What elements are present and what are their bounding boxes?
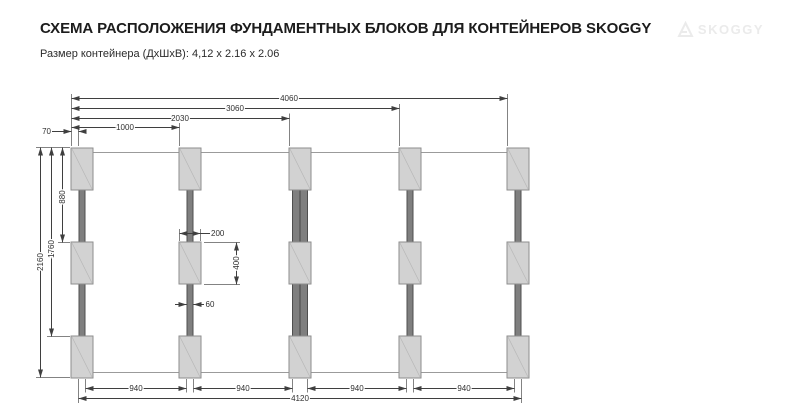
dimension-top-total: 4060	[72, 94, 508, 103]
dim-label-4120: 4120	[291, 394, 309, 403]
dimension-gap-1: 940	[86, 384, 187, 393]
foundation-blocks	[71, 148, 529, 378]
dim-label-2160: 2160	[36, 253, 45, 271]
dimension-block-height: 400	[204, 243, 241, 285]
dimension-top-2030: 2030	[72, 114, 290, 123]
page: СХЕМА РАСПОЛОЖЕНИЯ ФУНДАМЕНТНЫХ БЛОКОВ Д…	[0, 0, 800, 420]
dimension-height-880: 880	[58, 148, 67, 243]
dim-label-3060: 3060	[226, 104, 244, 113]
foundation-layout-diagram: 4060 3060 2030 1000 70 2160	[0, 0, 800, 420]
dim-label-880: 880	[58, 190, 67, 204]
dim-label-2030: 2030	[171, 114, 189, 123]
dimension-height-1760: 1760	[47, 148, 56, 337]
dim-label-60: 60	[206, 300, 215, 309]
dim-label-1000: 1000	[116, 123, 134, 132]
dimension-height-total: 2160	[36, 148, 45, 378]
dimension-gap-4: 940	[414, 384, 515, 393]
dimension-gap-2: 940	[194, 384, 293, 393]
dimension-beam-width: 60	[175, 300, 215, 309]
dim-label-940: 940	[457, 384, 471, 393]
dimension-top-3060: 3060	[72, 104, 400, 113]
dim-label-70: 70	[42, 127, 51, 136]
dimension-block-width: 200	[180, 229, 225, 241]
dimension-gap-3: 940	[308, 384, 407, 393]
dim-label-1760: 1760	[47, 240, 56, 258]
dim-label-200: 200	[211, 229, 225, 238]
dim-label-4060: 4060	[280, 94, 298, 103]
dim-label-940: 940	[236, 384, 250, 393]
dim-label-940: 940	[129, 384, 143, 393]
dimension-bottom-total: 4120	[79, 394, 522, 403]
dim-label-400: 400	[232, 256, 241, 270]
dim-label-940: 940	[350, 384, 364, 393]
dimension-top-1000: 1000	[72, 123, 180, 132]
dimension-edge-offset: 70	[42, 127, 86, 136]
